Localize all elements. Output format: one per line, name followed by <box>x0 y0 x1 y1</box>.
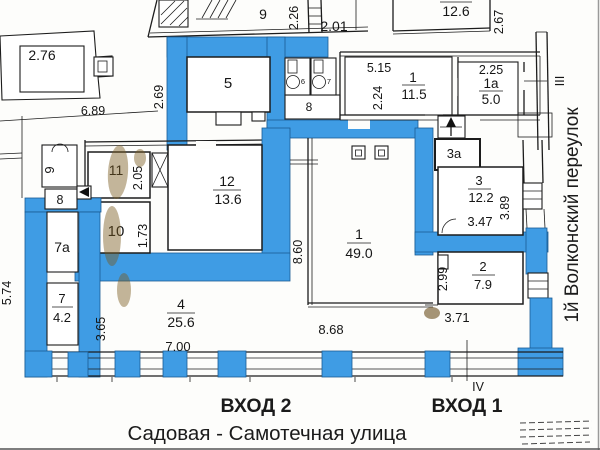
label-room-7-area: 4.2 <box>53 310 71 325</box>
dim-2-24: 2.24 <box>371 86 385 110</box>
dim-2-25: 2.25 <box>479 63 503 77</box>
label-room-2-num: 2 <box>479 259 486 274</box>
building-rooms-1-1a: 5.15 2.24 1 11.5 2.25 1a 5.0 III <box>340 52 567 120</box>
street-bottom-label: Садовая - Самотечная улица <box>127 422 407 445</box>
stairs-hatch-2 <box>196 0 236 19</box>
room-4: 4 25.6 7.00 3.65 8.68 <box>94 296 344 354</box>
dim-2-67: 2.67 <box>492 10 506 34</box>
label-room-4-num: 4 <box>177 296 185 312</box>
bottom-street-wall <box>25 340 563 382</box>
label-room-1a-area: 5.0 <box>482 92 501 107</box>
label-room-7a: 7a <box>54 239 70 255</box>
building-12-6: 12.6 2.67 <box>393 0 506 34</box>
room-5: 5 <box>187 57 270 125</box>
room-8-wc-outline <box>285 95 340 119</box>
floor-plan-svg: 2.76 6.89 2.69 9 2.26 2.01 <box>0 0 600 450</box>
dim-2-99: 2.99 <box>436 267 450 291</box>
dim-3-47: 3.47 <box>467 214 492 229</box>
label-room-8: 8 <box>57 193 64 207</box>
label-room-1-big-area: 49.0 <box>345 245 372 261</box>
wc-stall-7 <box>311 58 336 95</box>
building-top-strip: 9 2.26 2.01 <box>148 0 368 37</box>
label-room-8-wc: 8 <box>306 100 313 114</box>
mark-III: III <box>552 76 567 87</box>
label-room-7-num: 7 <box>58 291 65 306</box>
panel-icon <box>375 146 388 159</box>
dim-5-74: 5.74 <box>0 281 14 305</box>
room-9-left-outline <box>42 145 77 187</box>
dim-2-69: 2.69 <box>152 85 166 109</box>
dim-2-01: 2.01 <box>320 18 347 34</box>
entrance-1-label: ВХОД 1 <box>432 395 503 417</box>
door-gap <box>196 141 216 149</box>
dim-2-05: 2.05 <box>131 166 145 190</box>
label-room-12-area: 13.6 <box>214 191 241 207</box>
label-room-2-76-area: 2.76 <box>28 47 55 63</box>
label-room-1-small-num: 1 <box>409 70 417 85</box>
dim-6-89: 6.89 <box>81 104 105 118</box>
right-street-wall <box>518 32 552 150</box>
dim-3-71: 3.71 <box>444 310 469 325</box>
label-room-3-num: 3 <box>475 173 482 188</box>
wc-stall-6 <box>285 58 310 95</box>
stairs-hatch-1 <box>159 0 188 27</box>
label-room-2-area: 7.9 <box>474 277 492 292</box>
wall-ticks <box>57 377 452 382</box>
label-room-5: 5 <box>224 75 232 92</box>
highlighted-wall-mid <box>262 128 290 255</box>
stair-arrow <box>438 116 465 138</box>
room-1-big: 1 49.0 8.60 <box>290 128 433 307</box>
window-icon <box>528 273 548 298</box>
label-room-1-big-num: 1 <box>355 226 363 242</box>
wc-block: 6 7 8 <box>285 58 340 119</box>
door-gap <box>348 119 370 129</box>
dim-1-73: 1.73 <box>136 224 150 248</box>
label-room-1-small-area: 11.5 <box>401 87 426 102</box>
street-right-label: 1й Волконский переулок <box>562 107 583 323</box>
label-wc-6: 6 <box>301 77 305 86</box>
label-room-12-6-area: 12.6 <box>442 3 469 19</box>
dim-8-60: 8.60 <box>291 240 305 264</box>
label-room-1a-num: 1a <box>483 76 499 91</box>
floor-plan-page: 2.76 6.89 2.69 9 2.26 2.01 <box>0 0 600 450</box>
label-wc-7: 7 <box>327 77 331 86</box>
panel-icon <box>352 146 365 159</box>
right-street-wall-lower <box>518 140 563 376</box>
dim-3-65: 3.65 <box>94 317 108 341</box>
window-icon <box>523 183 542 209</box>
left-rooms-column: 9 8 7a 7 4.2 5.74 <box>0 144 101 377</box>
label-room-12-num: 12 <box>219 173 235 189</box>
dim-3-89: 3.89 <box>498 196 512 220</box>
label-room-9-left: 9 <box>42 166 57 173</box>
label-room-9-top: 9 <box>259 6 267 22</box>
label-room-3-area: 12.2 <box>468 190 493 205</box>
steps-marks <box>520 421 592 444</box>
label-room-4-area: 25.6 <box>167 314 194 330</box>
entrance-2-label: ВХОД 2 <box>221 395 292 417</box>
dim-5-15: 5.15 <box>367 61 391 75</box>
label-room-3a: 3a <box>447 146 462 161</box>
dim-7-00: 7.00 <box>165 339 190 354</box>
mark-IV: IV <box>472 380 484 394</box>
wall-cross <box>518 113 552 137</box>
dim-8-68: 8.68 <box>318 322 343 337</box>
room-1-small-outline <box>345 57 452 115</box>
dim-2-26: 2.26 <box>287 6 301 30</box>
